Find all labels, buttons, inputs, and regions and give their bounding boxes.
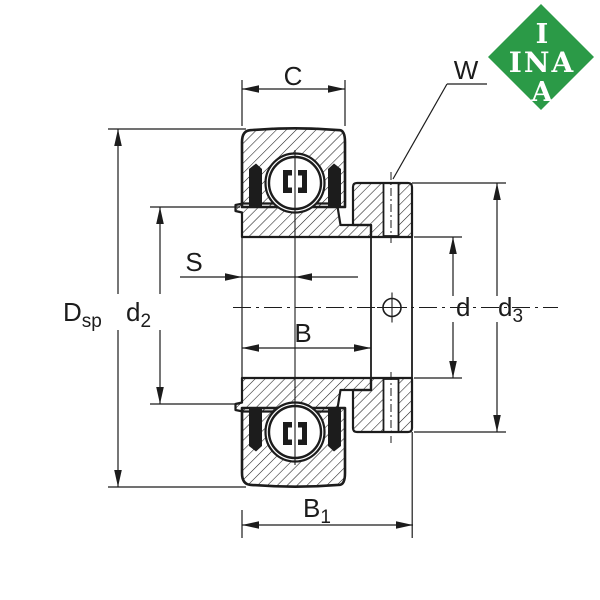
drawing-svg: C W S B B1 Dsp	[0, 0, 600, 600]
seal-left-top	[249, 164, 262, 207]
dimension-dsp: Dsp	[63, 129, 246, 487]
dim-label-w: W	[454, 55, 479, 85]
dim-label-c: C	[284, 61, 303, 91]
dim-label-d3: d3	[498, 292, 523, 327]
dim-label-d: d	[456, 292, 470, 322]
seal-right-bottom	[328, 409, 341, 452]
dim-label-s: S	[185, 247, 202, 277]
dimension-d2: d2	[126, 207, 240, 404]
dim-label-d2: d2	[126, 297, 151, 332]
dimension-c: C	[242, 61, 345, 126]
dimension-b: B	[242, 318, 371, 352]
logo-word: INA	[509, 46, 575, 79]
screw-hole-crosshair	[377, 293, 407, 323]
seal-left-bottom	[249, 409, 262, 452]
dimension-s: S	[180, 247, 358, 281]
dim-label-dsp: Dsp	[63, 297, 102, 332]
dimension-w: W	[393, 55, 487, 179]
logo-letter-bottom: A	[531, 77, 554, 108]
dim-label-b1: B1	[303, 493, 331, 528]
dim-label-b: B	[294, 318, 311, 348]
bearing-dimension-drawing: C W S B B1 Dsp	[0, 0, 600, 600]
ina-logo: I INA A	[488, 4, 594, 110]
seal-right-top	[328, 164, 341, 207]
